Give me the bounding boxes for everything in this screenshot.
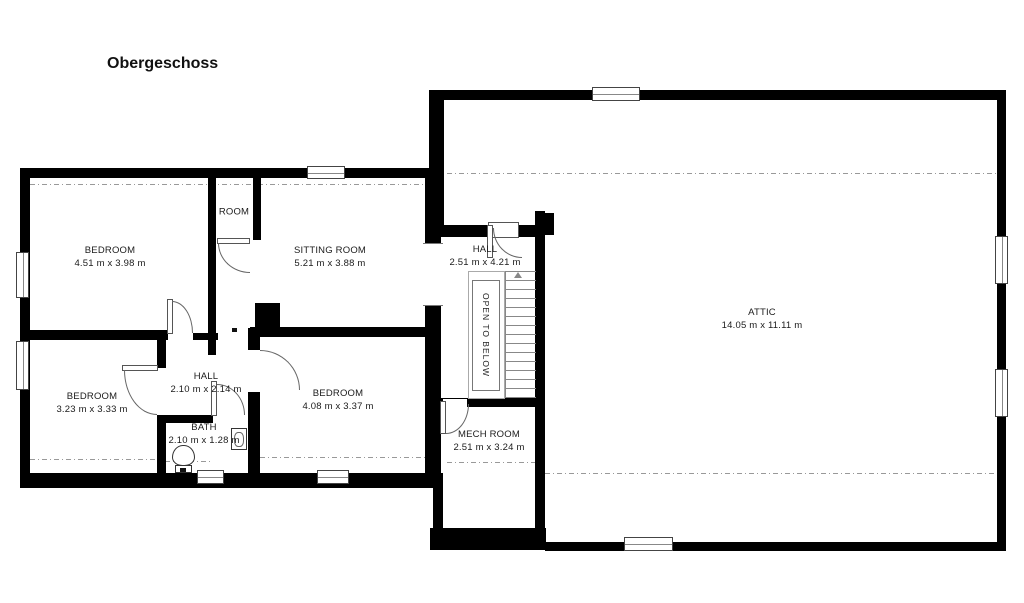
room-dims: 14.05 m x 11.11 m: [722, 319, 803, 332]
room-dims: 2.10 m x 2.14 m: [170, 383, 241, 396]
wall-segment: [20, 473, 437, 488]
wall-segment: [157, 333, 166, 368]
room-label-bedroom-1: BEDROOM 4.51 m x 3.98 m: [74, 244, 145, 270]
wall-segment: [433, 473, 443, 535]
room-name: BEDROOM: [74, 244, 145, 257]
room-name: HALL: [449, 243, 520, 256]
wall-segment: [20, 330, 168, 340]
room-label-closet: ROOM: [219, 206, 249, 219]
wall-segment: [425, 305, 441, 475]
window: [995, 236, 1008, 284]
room-label-bedroom-2: BEDROOM 3.23 m x 3.33 m: [56, 390, 127, 416]
wall-segment: [545, 542, 1006, 551]
wall-segment: [20, 168, 30, 488]
floor-title: Obergeschoss: [107, 55, 218, 73]
toilet-detail: [180, 468, 186, 472]
toilet-icon: [172, 445, 195, 466]
wall-segment: [535, 211, 545, 535]
opening-jamb: [423, 305, 443, 306]
room-name: BEDROOM: [302, 387, 373, 400]
door-arc: [218, 243, 250, 273]
room-dims: 3.23 m x 3.33 m: [56, 403, 127, 416]
window: [197, 470, 224, 484]
wall-segment: [20, 168, 441, 178]
room-name: SITTING ROOM: [294, 244, 366, 257]
door-arc: [172, 301, 193, 333]
room-label-attic: ATTIC 14.05 m x 11.11 m: [722, 306, 803, 332]
stair-direction-icon: [514, 272, 522, 278]
open-to-below-label: OPEN TO BELOW: [481, 293, 491, 377]
room-name: BEDROOM: [56, 390, 127, 403]
room-name: ATTIC: [722, 306, 803, 319]
room-dims: 2.51 m x 3.24 m: [453, 441, 524, 454]
room-dims: 5.21 m x 3.88 m: [294, 257, 366, 270]
wall-segment: [997, 90, 1006, 551]
window: [592, 87, 640, 101]
window: [16, 341, 29, 390]
room-dims: 2.51 m x 4.21 m: [449, 256, 520, 269]
door-arc: [260, 350, 300, 390]
wall-segment: [429, 90, 444, 230]
room-label-bedroom-3: BEDROOM 4.08 m x 3.37 m: [302, 387, 373, 413]
room-label-bath: BATH 2.10 m x 1.28 m: [168, 421, 239, 447]
wall-segment: [545, 213, 554, 235]
room-dims: 4.51 m x 3.98 m: [74, 257, 145, 270]
opening-jamb: [423, 243, 443, 244]
room-dims: 2.10 m x 1.28 m: [168, 434, 239, 447]
door-arc: [124, 370, 157, 415]
ceiling-line: [447, 462, 535, 463]
wall-segment: [430, 528, 546, 550]
wall-segment: [193, 333, 218, 340]
wall-segment: [157, 415, 166, 473]
window: [317, 470, 349, 484]
wall-segment: [255, 303, 280, 329]
room-label-hall-lower: HALL 2.10 m x 2.14 m: [170, 370, 241, 396]
room-name: HALL: [170, 370, 241, 383]
ceiling-line: [30, 184, 423, 185]
wall-segment: [433, 90, 1006, 100]
window: [307, 166, 345, 179]
room-label-hall-upper: HALL 2.51 m x 4.21 m: [449, 243, 520, 269]
window: [995, 369, 1008, 417]
room-label-mech-room: MECH ROOM 2.51 m x 3.24 m: [453, 428, 524, 454]
wall-segment: [253, 178, 261, 240]
room-name: ROOM: [219, 206, 249, 219]
stairwell-open-to-below: OPEN TO BELOW: [472, 280, 500, 391]
wall-tick: [232, 328, 237, 332]
room-label-sitting-room: SITTING ROOM 5.21 m x 3.88 m: [294, 244, 366, 270]
room-name: MECH ROOM: [453, 428, 524, 441]
room-name: BATH: [168, 421, 239, 434]
room-dims: 4.08 m x 3.37 m: [302, 400, 373, 413]
wall-segment: [441, 225, 488, 237]
window: [624, 537, 673, 551]
floor-plan: Obergeschoss: [0, 0, 1024, 603]
wall-segment: [248, 392, 260, 473]
wall-segment: [208, 178, 216, 355]
ceiling-line: [447, 173, 997, 174]
ceiling-line: [545, 473, 997, 474]
staircase: [505, 271, 536, 398]
ceiling-line: [260, 457, 425, 458]
ceiling-line: [30, 459, 157, 460]
window: [16, 252, 29, 298]
wall-segment: [248, 328, 260, 350]
